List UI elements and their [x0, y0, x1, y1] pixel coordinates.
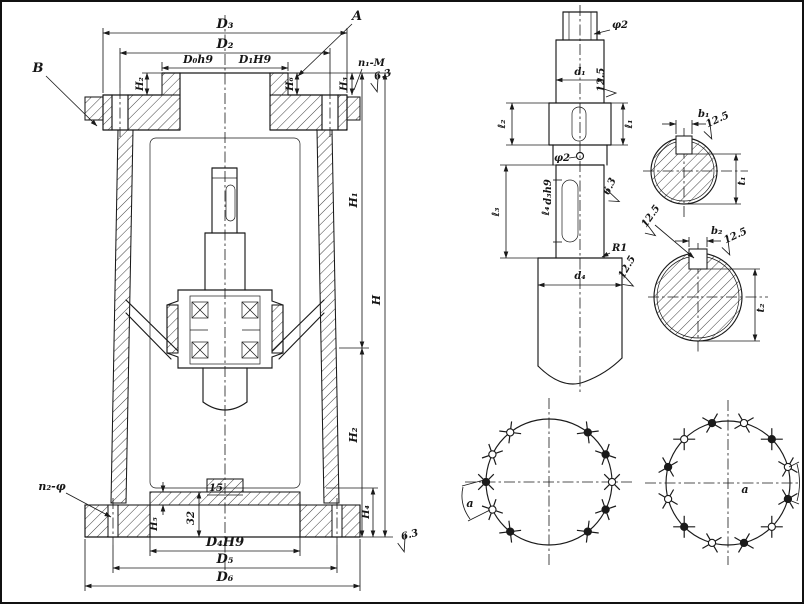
dim-D4H9: D₄H9	[205, 535, 244, 550]
view-label-A: A	[350, 9, 362, 24]
dim-d4: d₄	[574, 271, 585, 282]
dim-32: 32	[186, 511, 197, 525]
dim-D5: D₅	[216, 552, 234, 567]
dim-D0h9: D₀h9	[182, 53, 213, 66]
surface-finish-d1-value: 12.5	[596, 68, 607, 92]
drawing-page: D₃ D₂ D₀h9 D₁H9 H₂ H₆ H₃ n₁-M 6.3 A B	[0, 0, 804, 604]
dim-D1H9: D₁H9	[238, 53, 272, 66]
dim-H2-top: H₂	[135, 76, 146, 91]
callout-n1-M: n₁-M	[358, 58, 386, 69]
dim-t2: t₂	[756, 303, 767, 313]
right-tab	[347, 97, 360, 120]
dim-D3: D₃	[216, 17, 234, 32]
dim-l1: ℓ₁	[624, 119, 635, 129]
dim-l3: ℓ₃	[491, 207, 502, 218]
dim-phi2-top: φ2	[612, 20, 628, 31]
dim-a-left: a	[466, 497, 473, 510]
dim-D2: D₂	[216, 37, 234, 52]
dim-a-right: a	[741, 483, 748, 496]
engineering-drawing: D₃ D₂ D₀h9 D₁H9 H₂ H₆ H₃ n₁-M 6.3 A B	[0, 0, 804, 604]
dim-H6: H₆	[285, 76, 296, 91]
dim-H1: H₁	[347, 192, 360, 208]
dim-H: H	[370, 294, 383, 306]
callout-n2-phi: n₂-φ	[38, 480, 65, 493]
dim-15: 15	[209, 483, 223, 494]
dim-d3h9: d₃h9	[543, 179, 554, 205]
view-label-B: B	[32, 61, 44, 76]
dim-d1: d₁	[574, 67, 585, 78]
dim-H2-bot: H₂	[347, 427, 360, 443]
dim-b2: b₂	[711, 226, 723, 237]
dim-H3: H₃	[339, 76, 350, 91]
dim-H5: H₅	[149, 516, 160, 531]
dim-l4: ℓ₄	[541, 206, 552, 216]
section1-keyway	[676, 136, 692, 154]
dim-D6: D₆	[216, 570, 234, 585]
dim-phi2-hole: φ2	[554, 153, 570, 164]
dim-H4: H₄	[361, 505, 372, 520]
section2-keyway	[689, 249, 707, 269]
dim-t1: t₁	[737, 177, 748, 186]
dim-l2: ℓ₂	[497, 119, 508, 130]
dim-R1: R1	[611, 243, 627, 254]
